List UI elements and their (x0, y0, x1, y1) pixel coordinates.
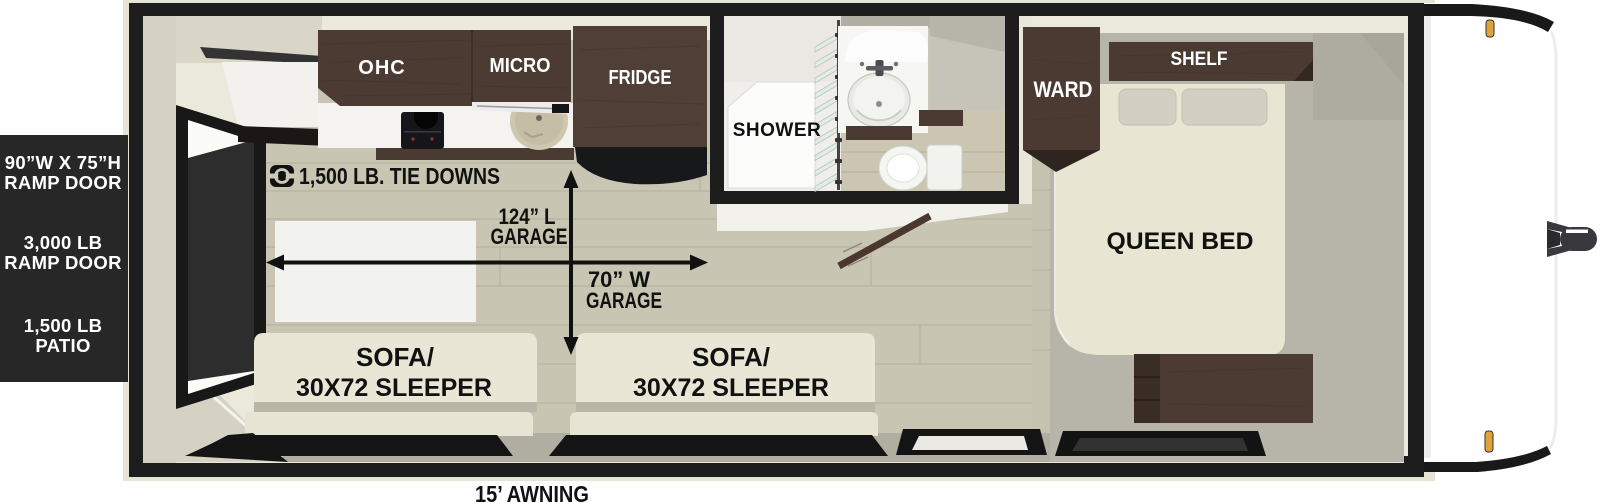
svg-text:GARAGE: GARAGE (586, 288, 662, 313)
svg-text:SOFA/: SOFA/ (356, 342, 434, 372)
svg-text:GARAGE: GARAGE (491, 224, 568, 249)
svg-text:QUEEN BED: QUEEN BED (1107, 228, 1254, 255)
svg-text:WARD: WARD (1034, 77, 1093, 102)
svg-text:RAMP DOOR: RAMP DOOR (4, 172, 121, 193)
svg-text:SHELF: SHELF (1171, 49, 1228, 70)
svg-text:PATIO: PATIO (35, 335, 90, 356)
svg-text:MICRO: MICRO (490, 55, 551, 77)
svg-text:90”W X 75”H: 90”W X 75”H (5, 152, 121, 173)
svg-text:3,000 LB: 3,000 LB (24, 232, 103, 253)
svg-text:15’ AWNING: 15’ AWNING (475, 481, 589, 503)
svg-text:OHC: OHC (358, 57, 405, 79)
svg-text:30X72 SLEEPER: 30X72 SLEEPER (633, 374, 829, 402)
svg-text:RAMP DOOR: RAMP DOOR (4, 252, 121, 273)
svg-text:30X72 SLEEPER: 30X72 SLEEPER (296, 374, 492, 402)
svg-text:SHOWER: SHOWER (733, 120, 822, 141)
svg-text:FRIDGE: FRIDGE (609, 67, 672, 89)
svg-text:SOFA/: SOFA/ (692, 342, 770, 372)
svg-text:1,500 LB: 1,500 LB (24, 315, 103, 336)
svg-text:1,500 LB. TIE DOWNS: 1,500 LB. TIE DOWNS (299, 163, 500, 189)
